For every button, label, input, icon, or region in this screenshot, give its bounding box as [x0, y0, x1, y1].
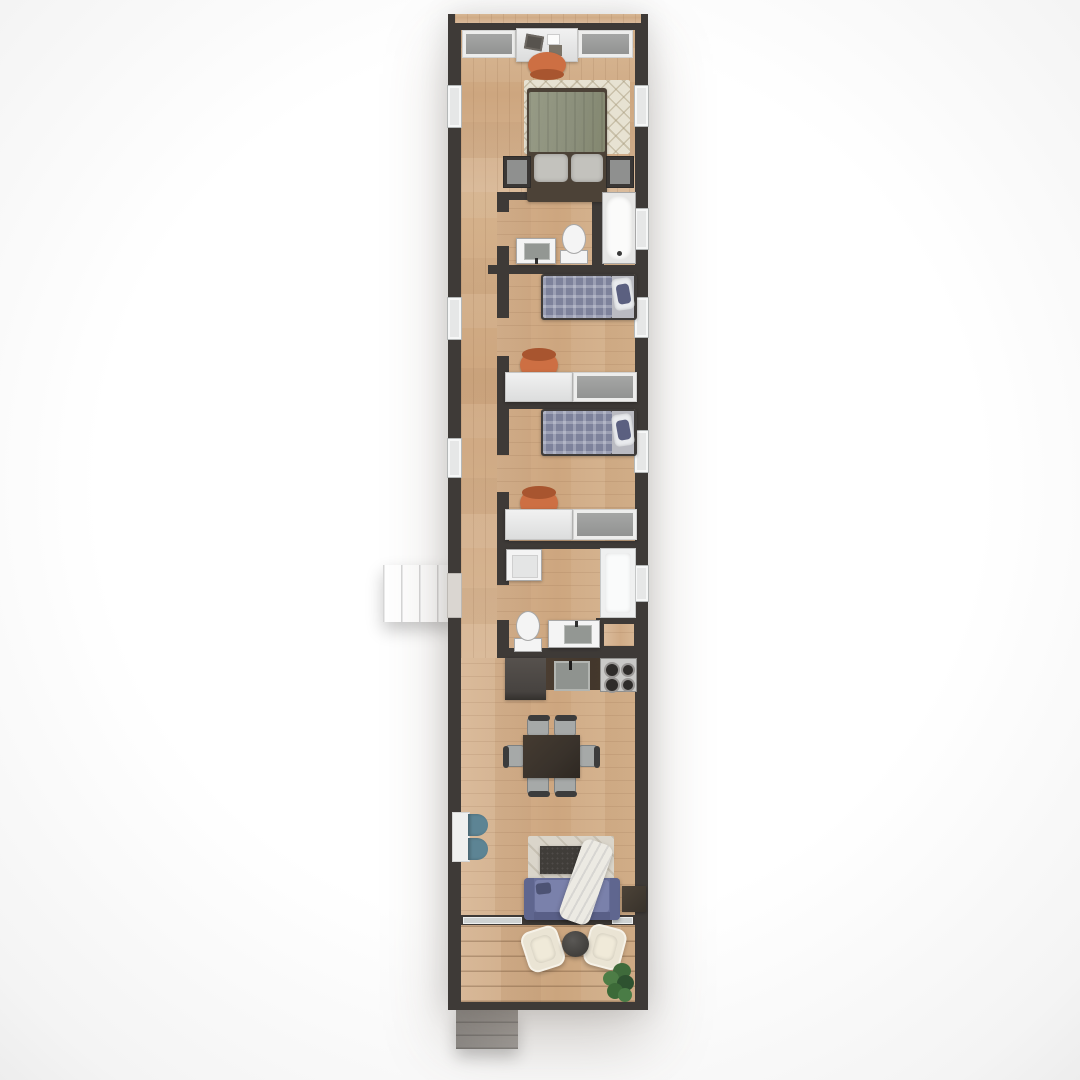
wardrobe-1 — [573, 372, 637, 402]
desk-1 — [505, 372, 573, 402]
wardrobe-door — [577, 376, 633, 398]
window-bathroom-right — [634, 208, 649, 250]
wardrobe-2 — [573, 509, 637, 540]
plaid-duvet — [543, 276, 612, 318]
toilet-bowl-laundry — [516, 611, 540, 641]
chair-backrest — [522, 348, 555, 361]
dining-chair-top-2 — [554, 717, 576, 737]
window-bedroom2-left — [447, 438, 462, 478]
wardrobe-door — [577, 513, 633, 536]
nightstand-right — [606, 156, 634, 188]
chair-backrest — [530, 69, 563, 80]
toilet-bowl-top — [562, 224, 586, 254]
desk-2 — [505, 509, 573, 540]
burner — [621, 678, 635, 692]
shower-enclosure — [600, 548, 636, 618]
desk-papers — [547, 34, 560, 45]
burner — [621, 663, 635, 677]
master-wardrobe-right — [578, 30, 633, 58]
kitchen-counter — [546, 658, 636, 690]
window-master-right — [634, 85, 649, 127]
shower-tray — [605, 553, 631, 613]
faucet — [535, 258, 538, 264]
gas-hob — [600, 658, 637, 692]
burner — [604, 662, 620, 678]
entry-porch-left — [383, 565, 456, 622]
dining-chair-bottom-2 — [554, 775, 576, 795]
laptop — [524, 34, 544, 52]
apartment-building-outline — [448, 14, 648, 1010]
burner — [604, 677, 620, 693]
sofa-side-table — [622, 886, 646, 912]
bathtub-drain — [617, 251, 622, 256]
plant-leaf — [618, 988, 632, 1002]
bathtub — [602, 192, 636, 264]
floorplan-scene — [0, 0, 1080, 1080]
master-double-bed — [527, 88, 607, 202]
laundry-niche-floor — [604, 624, 634, 646]
window-bedroom1-left — [447, 297, 462, 340]
armchair-cushion — [529, 933, 558, 965]
nightstand-top — [610, 160, 630, 184]
single-bed-2 — [541, 409, 637, 456]
armchair-cushion — [591, 932, 619, 963]
bed-pillow-right — [571, 154, 603, 182]
sink-faucet — [569, 661, 572, 670]
terrace-glass-door-left — [463, 917, 522, 924]
kitchen-sink — [554, 661, 590, 691]
chair-back — [555, 715, 577, 721]
plaid-duvet — [543, 411, 612, 454]
window-laundry-right — [634, 565, 649, 602]
terrace-round-table — [562, 931, 589, 957]
sofa-armrest-right — [610, 878, 620, 920]
top-ledge — [455, 14, 641, 23]
faucet — [575, 621, 578, 627]
window-master-left — [447, 85, 462, 128]
chair-backrest — [522, 486, 555, 499]
nightstand-top — [507, 160, 527, 184]
dining-table — [523, 735, 580, 778]
washbasin-vanity-laundry — [548, 620, 600, 648]
chair-back — [503, 746, 509, 768]
bed-pillow-left — [534, 154, 568, 182]
wardrobe-door — [582, 34, 629, 54]
single-bed-1 — [541, 274, 637, 320]
chair-back — [555, 791, 577, 797]
sofa-armrest-left — [524, 878, 534, 920]
dining-chair-bottom-1 — [527, 775, 549, 795]
wardrobe-door — [466, 34, 512, 54]
dining-chair-right — [578, 745, 598, 767]
dining-chair-left — [505, 745, 525, 767]
chair-back — [528, 715, 550, 721]
basin — [564, 625, 592, 644]
nightstand-left — [503, 156, 531, 188]
washer-lid — [512, 555, 538, 578]
potted-plant — [603, 963, 637, 1003]
washing-machine — [506, 549, 542, 581]
sage-duvet — [529, 92, 605, 152]
wall-bathroom-bedroom1 — [488, 265, 648, 274]
entry-steps-bottom — [456, 1010, 518, 1049]
wall-bottom-edge — [448, 1002, 648, 1010]
hallway-wall-seg1 — [497, 192, 509, 212]
chair-back — [594, 746, 600, 768]
floor-hallway — [461, 192, 497, 658]
master-desk-chair — [528, 52, 566, 78]
refrigerator — [505, 658, 546, 700]
hallway-wall-seg2 — [497, 246, 509, 318]
washbasin-vanity-top — [516, 238, 556, 264]
entry-door-left — [447, 573, 462, 618]
hallway-wall-seg5 — [497, 620, 509, 658]
hallway-wall-seg3 — [497, 356, 509, 455]
wall-bedroom1-bedroom2 — [497, 401, 648, 409]
dining-chair-top-1 — [527, 717, 549, 737]
sofa-pillow — [535, 882, 551, 895]
chair-back — [528, 791, 550, 797]
master-wardrobe-left — [462, 30, 516, 58]
